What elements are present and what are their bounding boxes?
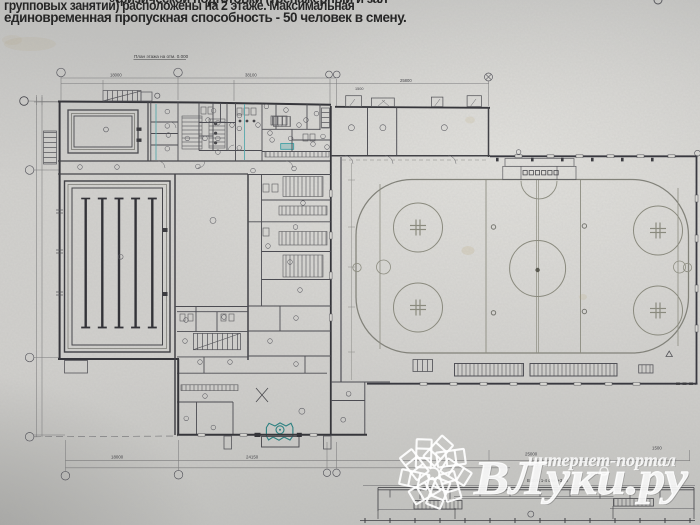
svg-text:25800: 25800 bbox=[400, 78, 412, 83]
svg-text:38100: 38100 bbox=[245, 73, 257, 78]
svg-text:18000: 18000 bbox=[110, 73, 122, 78]
svg-text:24150: 24150 bbox=[246, 455, 259, 460]
svg-text:1500: 1500 bbox=[355, 87, 363, 91]
svg-text:18000: 18000 bbox=[111, 455, 124, 460]
svg-text:План этажа на отм. 0.000: План этажа на отм. 0.000 bbox=[134, 54, 189, 59]
svg-text:ВЛуки.ру: ВЛуки.ру bbox=[473, 452, 689, 505]
